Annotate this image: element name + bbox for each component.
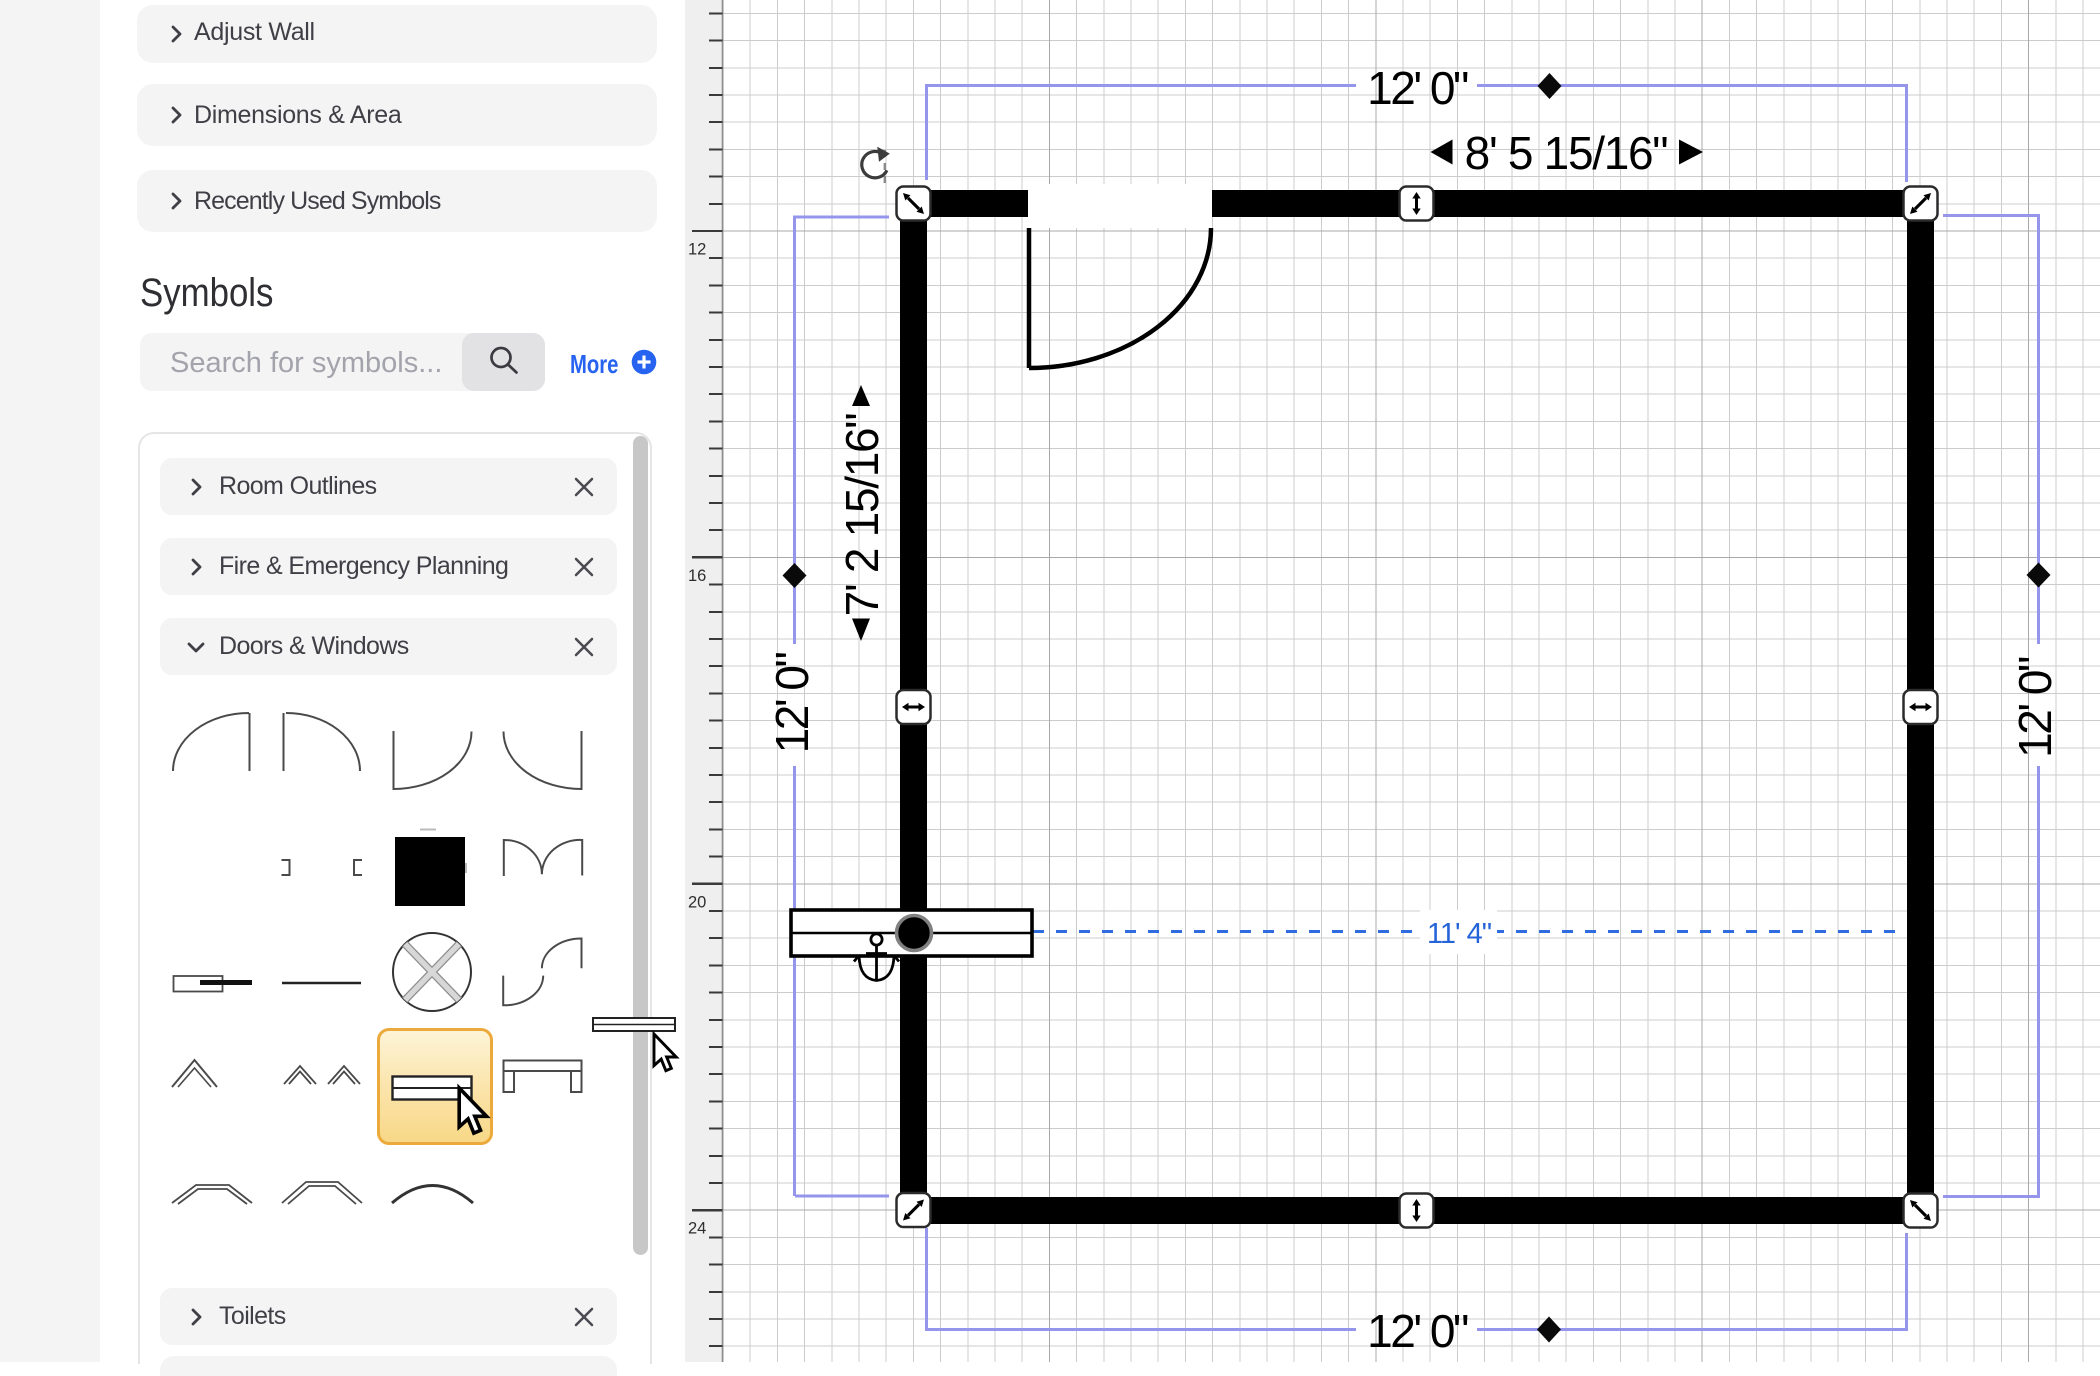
svg-text:7' 2 15/16": 7' 2 15/16" — [836, 414, 888, 617]
svg-text:11' 4": 11' 4" — [1427, 918, 1492, 950]
svg-text:12' 0": 12' 0" — [766, 653, 818, 754]
svg-text:20: 20 — [688, 893, 706, 911]
svg-text:12: 12 — [688, 241, 706, 259]
svg-text:16: 16 — [688, 567, 706, 585]
svg-text:12' 0": 12' 0" — [1367, 62, 1468, 114]
svg-text:12' 0": 12' 0" — [2009, 657, 2061, 758]
svg-text:8' 5 15/16": 8' 5 15/16" — [1465, 127, 1668, 179]
svg-text:24: 24 — [688, 1220, 706, 1238]
svg-text:12' 0": 12' 0" — [1367, 1305, 1468, 1357]
